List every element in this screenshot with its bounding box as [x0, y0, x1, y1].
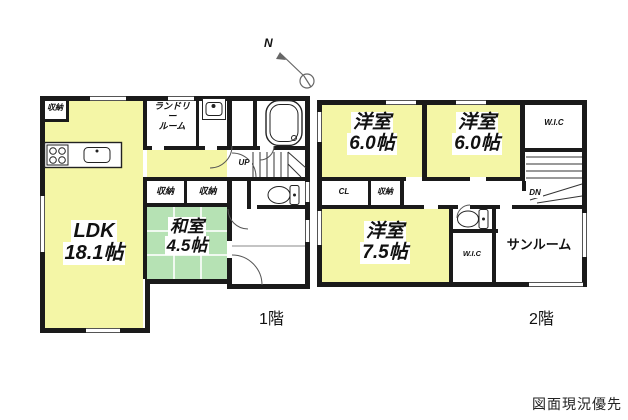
closet-2f-label: 収納: [371, 188, 399, 197]
door-opening: [424, 205, 438, 209]
window: [529, 282, 583, 287]
wall: [40, 119, 69, 122]
toilet-icon: [268, 186, 299, 205]
window: [317, 211, 322, 245]
door-opening: [406, 177, 422, 181]
wall: [227, 284, 310, 289]
wall: [184, 181, 187, 204]
north-label: N: [264, 36, 273, 50]
room-ldk-dining: [147, 150, 227, 177]
stairs-up-label: UP: [234, 159, 254, 168]
wall: [422, 100, 427, 181]
disclaimer-text: 図面現況優先: [532, 394, 622, 414]
wall: [227, 258, 232, 289]
window: [40, 196, 45, 252]
wall: [449, 205, 453, 287]
toilet-icon: [458, 210, 489, 229]
wall: [145, 279, 232, 284]
wall: [143, 203, 232, 207]
floor1-label: 1階: [259, 305, 284, 329]
wall: [317, 100, 587, 105]
cl-label: CL: [322, 188, 366, 197]
wall: [143, 96, 147, 150]
door-opening: [500, 205, 512, 209]
wall: [145, 279, 150, 333]
bedroom3-label: 洋室7.5帖: [331, 221, 439, 264]
wall: [520, 148, 587, 152]
sunroom-label: サンルーム: [496, 238, 582, 253]
door-opening: [152, 146, 164, 150]
window: [305, 220, 310, 242]
closet-left-label: 収納: [146, 186, 184, 196]
window: [456, 100, 486, 105]
stairs-down-label: DN: [524, 189, 546, 198]
bathtub-icon: [266, 101, 302, 146]
wall: [257, 205, 310, 209]
washbasin-icon: [203, 99, 226, 120]
wall: [400, 181, 404, 205]
window: [317, 112, 322, 142]
wall: [253, 96, 257, 150]
window: [86, 328, 120, 333]
wall: [582, 100, 587, 287]
wall: [143, 146, 310, 150]
door-opening: [205, 146, 217, 150]
window: [386, 100, 416, 105]
floorplan-page: N 収納 ランドリールーム UP 収納 収納 LDK18.1帖 和室4.5帖 1…: [0, 0, 628, 420]
closet-top-left-label: 収納: [43, 104, 67, 113]
laundry-room-label: ランドリールーム: [148, 101, 196, 131]
wall: [227, 96, 232, 150]
door-opening: [260, 146, 274, 150]
wall: [227, 181, 232, 241]
window: [305, 182, 310, 202]
wall: [449, 229, 498, 233]
floor2-label: 2階: [529, 305, 554, 329]
bedroom2-label: 洋室6.0帖: [437, 112, 517, 155]
north-arrow-icon: [276, 52, 314, 88]
wic-top-label: W.I.C: [527, 119, 581, 128]
bedroom1-label: 洋室6.0帖: [332, 112, 412, 155]
room-ldk: [45, 101, 143, 328]
washitsu-label: 和室4.5帖: [151, 217, 223, 255]
closet-right-label: 収納: [188, 186, 227, 196]
wall: [520, 100, 525, 181]
staircase-up: [253, 152, 306, 177]
window: [90, 96, 126, 101]
wall: [196, 96, 199, 148]
door-opening: [470, 177, 486, 181]
window: [582, 213, 587, 257]
wall: [247, 181, 251, 209]
wic-bottom-label: W.I.C: [450, 250, 494, 258]
ldk-label: LDK18.1帖: [46, 220, 142, 265]
door-opening: [458, 205, 470, 209]
